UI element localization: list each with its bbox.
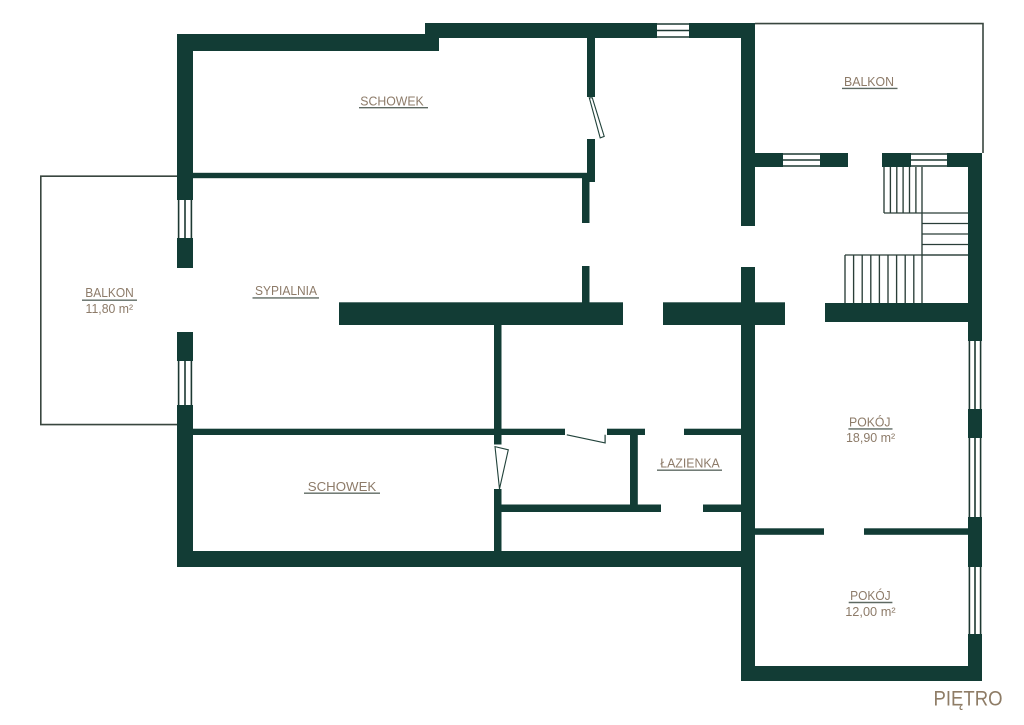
svg-text:POKÓJ: POKÓJ [849,415,891,430]
svg-text:SYPIALNIA: SYPIALNIA [255,283,317,298]
svg-text:11,80 m²: 11,80 m² [86,301,134,316]
svg-text:SCHOWEK: SCHOWEK [360,93,424,108]
svg-text:BALKON: BALKON [844,74,894,89]
svg-text:12,00 m²: 12,00 m² [845,604,896,619]
svg-text:BALKON: BALKON [85,285,134,300]
svg-text:18,90 m²: 18,90 m² [846,430,896,445]
svg-text:POKÓJ: POKÓJ [850,588,891,603]
svg-text:PIĘTRO: PIĘTRO [934,687,1003,710]
svg-text:ŁAZIENKA: ŁAZIENKA [660,456,720,471]
svg-text:SCHOWEK: SCHOWEK [308,479,377,494]
